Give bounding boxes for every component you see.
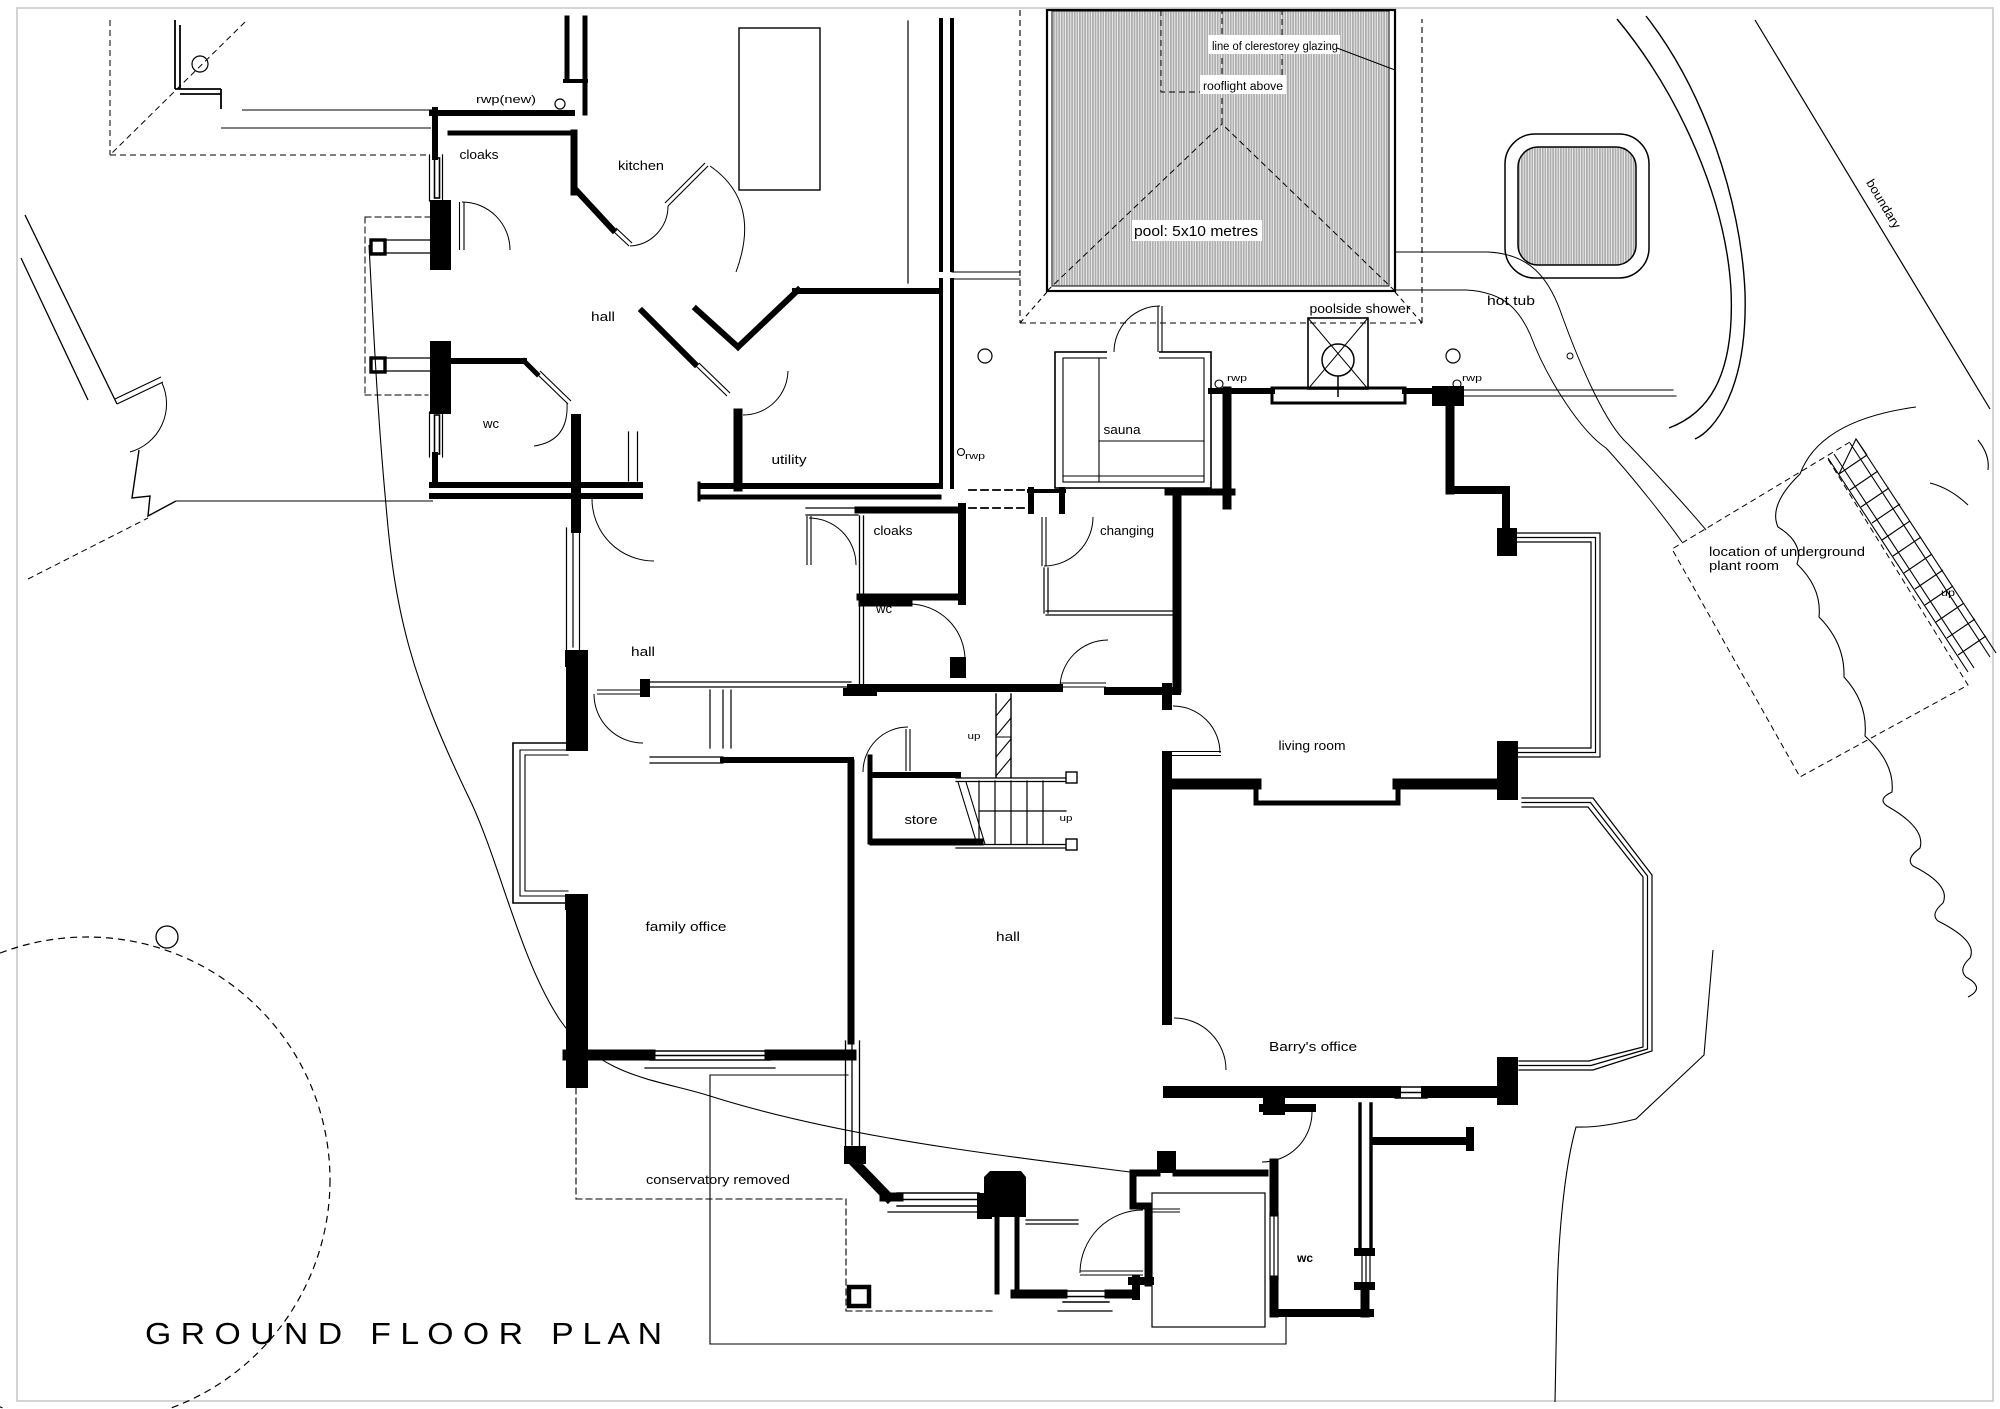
svg-text:up: up — [1941, 587, 1955, 599]
svg-text:up: up — [1060, 813, 1073, 824]
svg-text:wc: wc — [482, 416, 500, 431]
svg-text:cloaks: cloaks — [460, 147, 500, 162]
svg-text:conservatory removed: conservatory removed — [646, 1172, 790, 1187]
svg-text:hall: hall — [591, 309, 615, 324]
svg-text:line of clerestorey glazing: line of clerestorey glazing — [1212, 41, 1338, 53]
svg-text:Barry's office: Barry's office — [1269, 1039, 1357, 1054]
svg-text:utility: utility — [772, 452, 808, 467]
svg-text:location of underground: location of underground — [1709, 545, 1865, 559]
svg-text:sauna: sauna — [1104, 422, 1142, 437]
svg-text:rwp(new): rwp(new) — [476, 94, 536, 106]
svg-text:plant room: plant room — [1709, 559, 1779, 573]
svg-text:wc: wc — [1296, 1253, 1314, 1265]
svg-text:rwp: rwp — [1462, 373, 1482, 384]
svg-text:hall: hall — [631, 644, 655, 659]
svg-text:pool: 5x10 metres: pool: 5x10 metres — [1134, 224, 1258, 240]
svg-text:wc: wc — [875, 601, 893, 616]
svg-text:hot tub: hot tub — [1487, 294, 1535, 308]
svg-text:hall: hall — [996, 929, 1020, 944]
svg-text:store: store — [905, 812, 938, 827]
svg-text:kitchen: kitchen — [618, 158, 664, 173]
svg-text:G R O U N D F L O O R P L: G R O U N D F L O O R P L A N — [145, 1316, 662, 1351]
svg-text:rwp: rwp — [1227, 373, 1247, 384]
svg-text:rwp: rwp — [965, 451, 985, 462]
svg-text:family office: family office — [646, 919, 727, 934]
svg-text:rooflight above: rooflight above — [1203, 81, 1283, 93]
svg-text:living room: living room — [1279, 738, 1346, 753]
svg-text:poolside shower: poolside shower — [1310, 302, 1411, 316]
svg-text:changing: changing — [1100, 523, 1154, 538]
svg-text:up: up — [968, 731, 981, 742]
svg-text:cloaks: cloaks — [874, 523, 914, 538]
